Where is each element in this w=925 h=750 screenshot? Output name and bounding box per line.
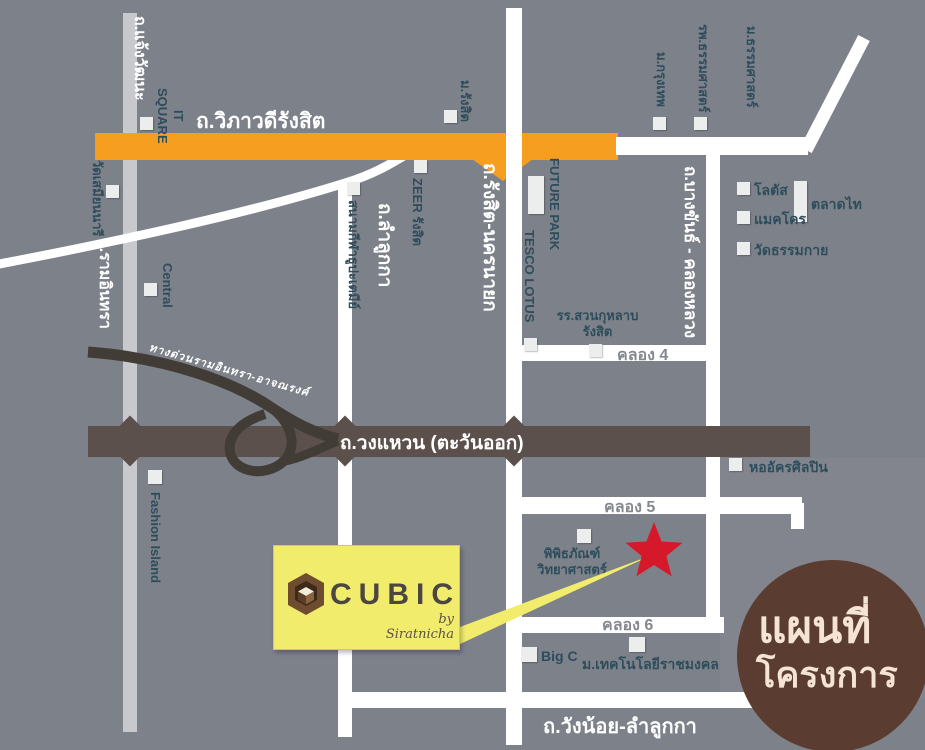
map-title-badge: แผนที่ โครงการ <box>737 560 925 750</box>
cubic-cube-icon <box>286 571 326 619</box>
cubic-byline-text: by Siratnicha <box>369 612 454 642</box>
project-map: ทางด่วนรามอินทรา-อาจณรงค์ ถ.วิภาวดีรังสิ… <box>0 0 925 750</box>
badge-line2: โครงการ <box>756 646 898 703</box>
cubic-logo-box: CUBIC by Siratnicha <box>273 545 460 650</box>
location-star-icon <box>624 522 684 582</box>
cubic-brand-text: CUBIC <box>330 578 460 612</box>
